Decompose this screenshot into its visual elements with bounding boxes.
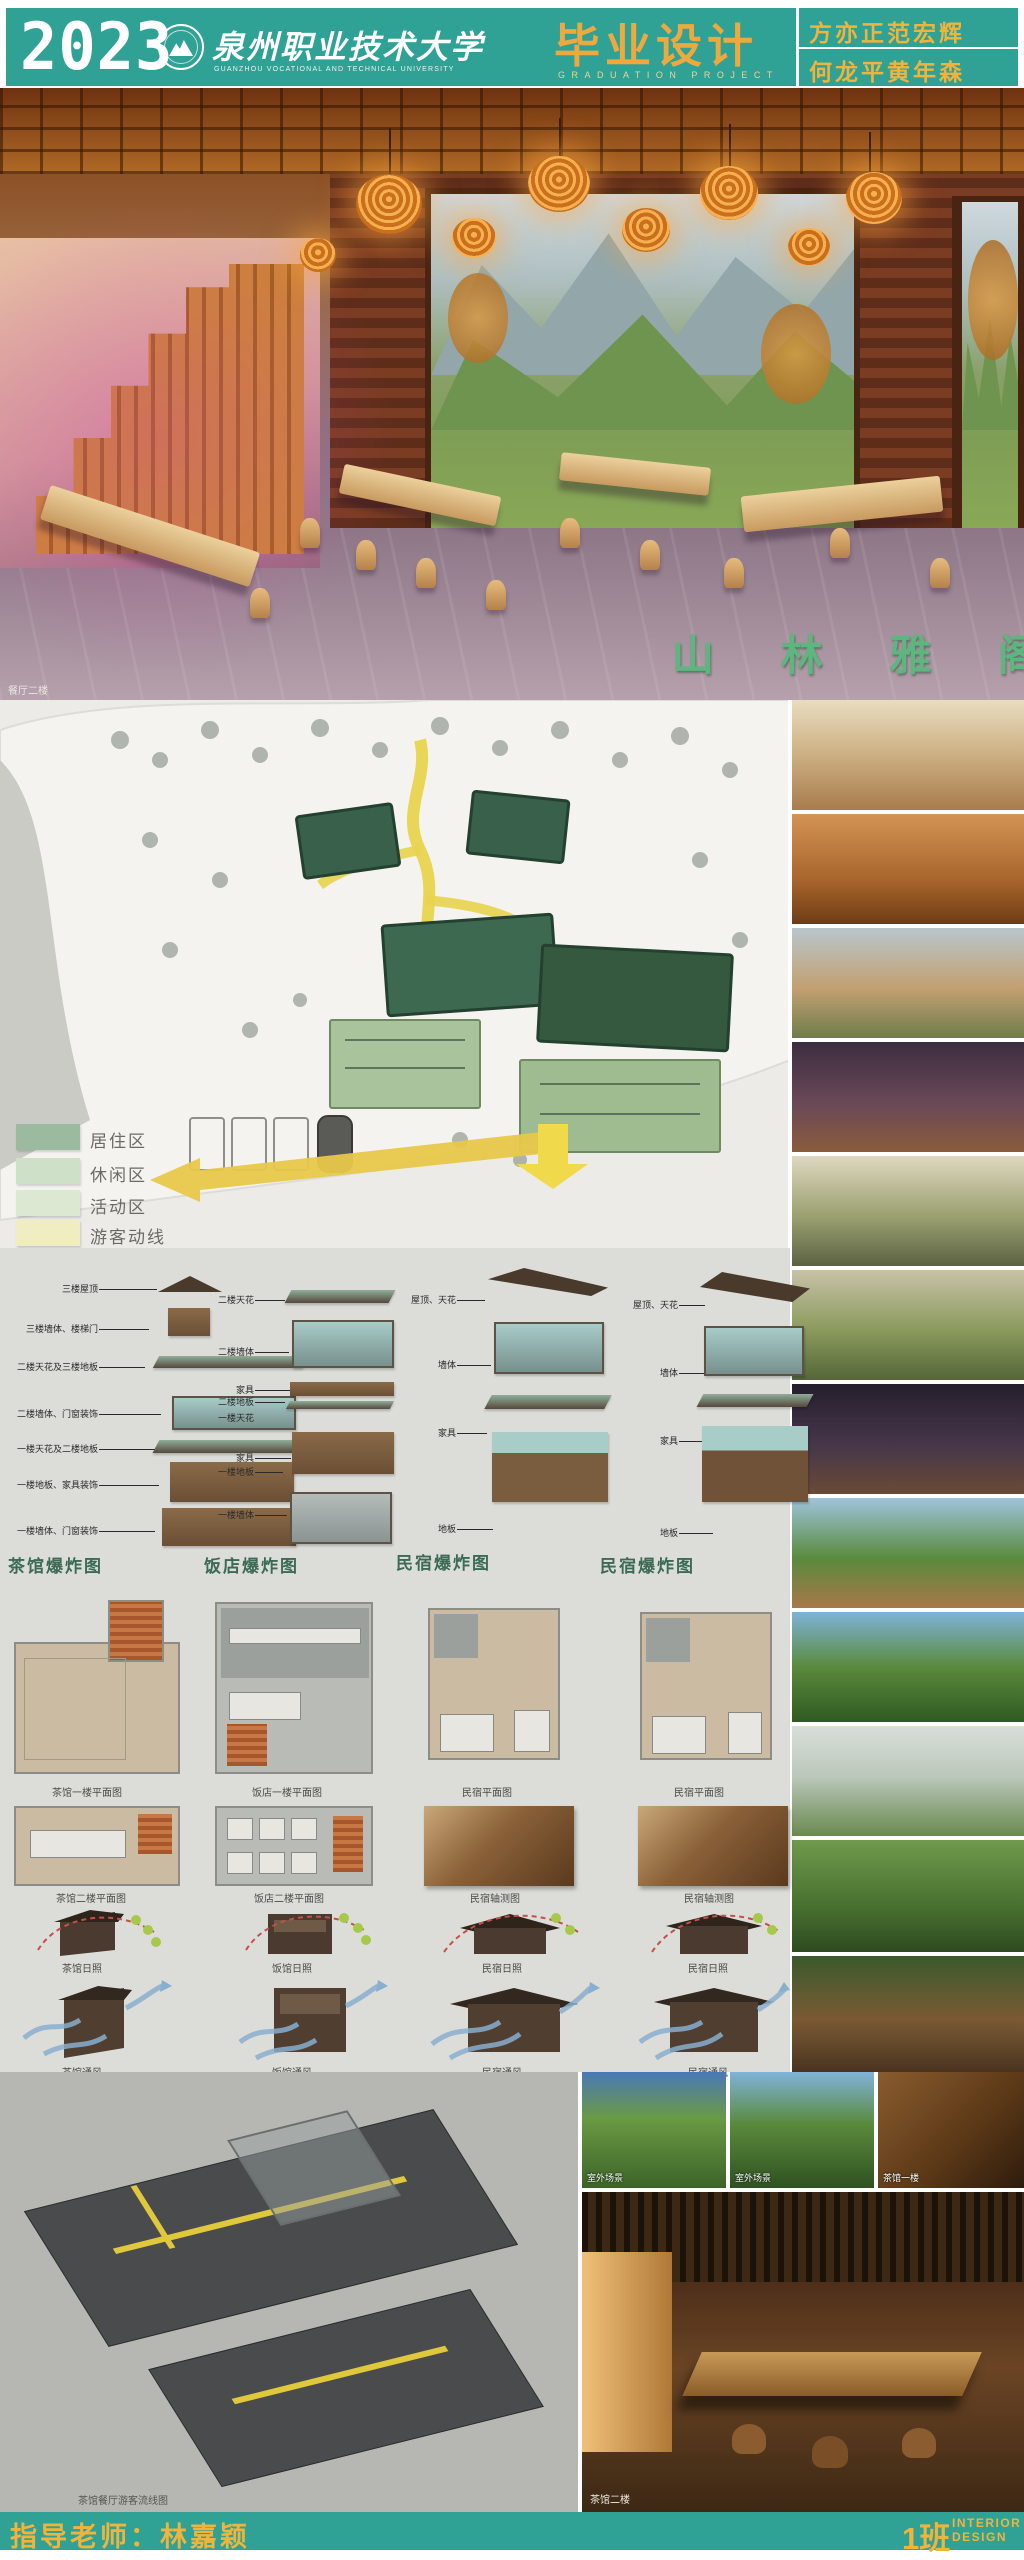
model-caption: 茶馆餐厅游客流线图 <box>78 2492 168 2507</box>
chair <box>486 580 506 610</box>
homestay-axon-render <box>424 1806 574 1886</box>
thumbnail-cabin-exterior <box>792 1498 1024 1608</box>
autumn-trees <box>968 240 1018 360</box>
exploded-part <box>286 1401 394 1409</box>
log-stool <box>732 2424 766 2454</box>
plan-seat <box>291 1852 317 1874</box>
log-stool <box>812 2436 848 2468</box>
sunlight-diagram-restaurant <box>230 1906 380 1958</box>
exploded-part-label: 二楼天花 <box>196 1295 254 1305</box>
exploded-part-label: 家具 <box>196 1453 254 1463</box>
exploded-part-label: 屋顶、天花 <box>612 1300 678 1310</box>
plan-seat <box>227 1818 253 1840</box>
authors-block: 方亦正范宏辉 何龙平黄年森 <box>799 8 1018 86</box>
plan-caption: 民宿轴测图 <box>684 1890 734 1905</box>
exploded-part-label: 二楼天花及三楼地板 <box>6 1362 98 1372</box>
exploded-part <box>697 1394 814 1407</box>
chair <box>560 518 580 548</box>
exploded-part-label: 一楼墙体、门窗装饰 <box>6 1526 98 1536</box>
plan-seat <box>259 1818 285 1840</box>
exploded-part-label: 家具 <box>196 1385 254 1395</box>
sunlight-diagram-teahouse <box>20 1906 170 1958</box>
exploded-part <box>702 1426 808 1502</box>
exploded-part <box>494 1322 604 1374</box>
thumbnail-landscape <box>792 1612 1024 1722</box>
university-name-en: GUANZHOU VOCATIONAL AND TECHNICAL UNIVER… <box>214 66 455 73</box>
plan-teahouse-1f <box>14 1642 180 1774</box>
plan-caption: 茶馆二楼平面图 <box>56 1890 126 1905</box>
exploded-part-label: 屋顶、天花 <box>390 1295 456 1305</box>
thumbnail-terrace-deck <box>792 1956 1024 2072</box>
lantern-cord <box>389 128 391 176</box>
exploded-part-label: 地板 <box>612 1528 678 1538</box>
site-plan-section: 居住区 休闲区 活动区 游客动线 游客动线、功能分区图 <box>0 700 790 1248</box>
long-table <box>682 2352 982 2396</box>
chair <box>300 518 320 548</box>
plan-counter <box>229 1692 301 1720</box>
chair <box>830 528 850 558</box>
university-name-cn: 泉州职业技术大学 <box>212 22 484 68</box>
wind-diagram-homestay2 <box>630 1978 790 2062</box>
legend-swatch <box>16 1158 80 1184</box>
plan-caption: 民宿轴测图 <box>470 1890 520 1905</box>
exploded-part <box>292 1320 394 1368</box>
thumb-label: 茶馆一楼 <box>883 2171 919 2184</box>
plan-caption: 饭店二楼平面图 <box>254 1890 324 1905</box>
lantern-cord <box>869 132 871 172</box>
plan-stairs <box>138 1814 172 1854</box>
legend-label: 居住区 <box>90 1127 147 1152</box>
analysis-caption: 民宿日照 <box>482 1960 522 1975</box>
exploded-part <box>492 1432 608 1502</box>
thumbnail-media-room <box>792 1384 1024 1494</box>
section-title-restaurant-exploded: 饭店爆炸图 <box>204 1552 299 1577</box>
teahouse-corner-thumb: 茶馆一楼 <box>878 2072 1024 2188</box>
exploded-part-label: 三楼墙体、楼梯门 <box>6 1324 98 1334</box>
chair <box>724 558 744 588</box>
author-line-1: 方亦正范宏辉 <box>809 14 1014 48</box>
teahouse-2f-photo: 茶馆二楼 <box>582 2192 1024 2512</box>
plan-restaurant-1f <box>215 1602 373 1774</box>
legend-label: 休闲区 <box>90 1161 147 1186</box>
author-line-2: 何龙平黄年森 <box>809 53 1014 87</box>
outdoor-scene-thumb-1: 室外场景 <box>582 2072 726 2188</box>
chair <box>416 558 436 588</box>
class-number: 1班 <box>902 2513 950 2558</box>
thumbnail-building-exterior <box>792 928 1024 1038</box>
legend-swatch <box>16 1124 80 1150</box>
legend-swatch <box>16 1220 80 1246</box>
section-title-homestay-exploded: 民宿爆炸图 <box>396 1549 491 1574</box>
lantern-cord <box>729 124 731 168</box>
graduation-poster: 2023 泉州职业技术大学 GUANZHOU VOCATIONAL AND TE… <box>0 0 1024 2560</box>
exploded-part-label: 墙体 <box>612 1368 678 1378</box>
plan-restaurant-2f <box>215 1806 373 1886</box>
plan-table <box>514 1710 550 1752</box>
exploded-part-label: 一楼天花 <box>196 1413 254 1423</box>
header-bar: 2023 泉州职业技术大学 GUANZHOU VOCATIONAL AND TE… <box>6 8 1018 86</box>
hero-interior-render: 山 林 雅 阁 餐厅二楼 <box>0 88 1024 700</box>
pendant-lantern <box>788 228 830 266</box>
exploded-part <box>153 1356 309 1368</box>
exploded-part <box>704 1326 804 1376</box>
exploded-part <box>153 1440 310 1453</box>
thumbnail-guest-bed <box>792 1270 1024 1380</box>
plan-caption: 民宿平面图 <box>462 1784 512 1799</box>
exploded-part-label: 墙体 <box>390 1360 456 1370</box>
legend-swatch <box>16 1190 80 1216</box>
exploded-part <box>290 1382 394 1396</box>
exploded-part-label: 家具 <box>612 1436 678 1446</box>
plan-seat <box>259 1852 285 1874</box>
plan-homestay <box>428 1608 560 1760</box>
thumbnail-umbrella-deck <box>792 1840 1024 1952</box>
exploded-part <box>292 1432 394 1474</box>
log-stool <box>902 2428 936 2458</box>
university-logo-icon <box>158 24 204 70</box>
pendant-lantern <box>700 166 758 220</box>
plan-seat <box>227 1852 253 1874</box>
exploded-part-label: 二楼墙体 <box>196 1347 254 1357</box>
chair <box>930 558 950 588</box>
wind-diagram-teahouse <box>14 1978 174 2062</box>
plan-stairs <box>333 1816 363 1872</box>
exploded-part-label: 一楼地板、家具装饰 <box>6 1480 98 1490</box>
legend-label: 游客动线 <box>90 1223 166 1248</box>
photo-caption: 茶馆二楼 <box>590 2491 630 2506</box>
sunlight-diagram-homestay2 <box>640 1906 790 1958</box>
wind-diagram-restaurant <box>228 1978 388 2062</box>
project-title-cn: 毕业设计 <box>554 10 758 76</box>
pendant-lantern <box>622 208 670 252</box>
plan-bed <box>652 1716 706 1754</box>
plan-room-line <box>24 1658 126 1760</box>
autumn-trees <box>448 273 508 363</box>
chair <box>356 540 376 570</box>
plan-stairs <box>108 1600 164 1662</box>
chair <box>250 588 270 618</box>
plan-homestay-2 <box>640 1612 772 1760</box>
project-title-en: GRADUATION PROJECT <box>558 70 779 80</box>
thumbnail-glass-pavilion <box>792 1726 1024 1836</box>
plan-teahouse-2f <box>14 1806 180 1886</box>
wind-diagram-homestay <box>420 1978 600 2062</box>
window-light <box>582 2252 672 2452</box>
section-title-teahouse-exploded: 茶馆爆炸图 <box>8 1552 103 1577</box>
exploded-part-label: 二楼地板 <box>196 1397 254 1407</box>
outdoor-scene-thumb-2: 室外场景 <box>730 2072 874 2188</box>
plan-bed <box>440 1714 494 1752</box>
thumb-label: 室外场景 <box>735 2171 771 2184</box>
advisor-label: 指导老师：林嘉颖 <box>10 2515 250 2554</box>
autumn-trees <box>761 304 831 404</box>
plan-caption: 茶馆一楼平面图 <box>52 1784 122 1799</box>
thumbnail-bright-room <box>792 1156 1024 1266</box>
exploded-part-label: 一楼地板 <box>196 1467 254 1477</box>
thumbnail-dark-bedroom <box>792 1042 1024 1152</box>
pendant-lantern <box>528 156 590 212</box>
plan-stairs <box>227 1724 267 1766</box>
thumbnail-tea-lounge <box>792 700 1024 810</box>
exploded-part-label: 家具 <box>390 1428 456 1438</box>
plan-bath-zone <box>646 1618 690 1662</box>
analysis-caption: 茶馆日照 <box>62 1960 102 1975</box>
exploded-part <box>290 1492 392 1544</box>
class-major-line2: DESIGN <box>952 2530 1021 2544</box>
sunlight-diagram-homestay <box>430 1906 590 1958</box>
authors-divider <box>799 47 1018 49</box>
magenta-light-glow <box>0 208 440 668</box>
plan-seat <box>291 1818 317 1840</box>
analysis-caption: 民宿日照 <box>688 1960 728 1975</box>
exploded-part-label: 地板 <box>390 1524 456 1534</box>
project-watermark: 山 林 雅 阁 <box>672 622 1024 683</box>
plan-long-table <box>30 1830 126 1858</box>
pendant-lantern <box>452 218 496 258</box>
plan-table <box>728 1712 762 1754</box>
plan-caption: 民宿平面图 <box>674 1784 724 1799</box>
exploded-part <box>168 1308 210 1336</box>
analysis-caption: 饭馆日照 <box>272 1960 312 1975</box>
hero-caption: 餐厅二楼 <box>8 682 48 697</box>
thumbnail-wood-lobby <box>792 814 1024 924</box>
pendant-lantern <box>300 238 336 272</box>
exploded-part <box>484 1395 611 1409</box>
exploded-part-label: 一楼墙体 <box>196 1510 254 1520</box>
exploded-part-label: 二楼墙体、门窗装饰 <box>6 1409 98 1419</box>
plan-caption: 饭店一楼平面图 <box>252 1784 322 1799</box>
pendant-lantern <box>356 174 422 234</box>
exploded-part-label: 三楼屋顶 <box>6 1284 98 1294</box>
plan-counter <box>229 1628 361 1644</box>
thumb-label: 室外场景 <box>587 2171 623 2184</box>
class-major-line1: INTERIOR <box>952 2516 1021 2530</box>
section-title-homestay2-exploded: 民宿爆炸图 <box>600 1552 695 1577</box>
chair <box>640 540 660 570</box>
legend-label: 活动区 <box>90 1193 147 1218</box>
lantern-cord <box>559 118 561 158</box>
pendant-lantern <box>846 172 902 224</box>
homestay-axon-render <box>638 1806 788 1886</box>
footer-bar: 指导老师：林嘉颖 1班 INTERIOR DESIGN <box>0 2512 1024 2550</box>
exploded-part-label: 一楼天花及二楼地板 <box>6 1444 98 1454</box>
plan-bath-zone <box>434 1614 478 1658</box>
year-text: 2023 <box>20 8 173 85</box>
exploded-part <box>285 1290 396 1303</box>
render-thumbnail-strip <box>788 700 1024 2072</box>
class-major-en: INTERIOR DESIGN <box>952 2516 1021 2544</box>
